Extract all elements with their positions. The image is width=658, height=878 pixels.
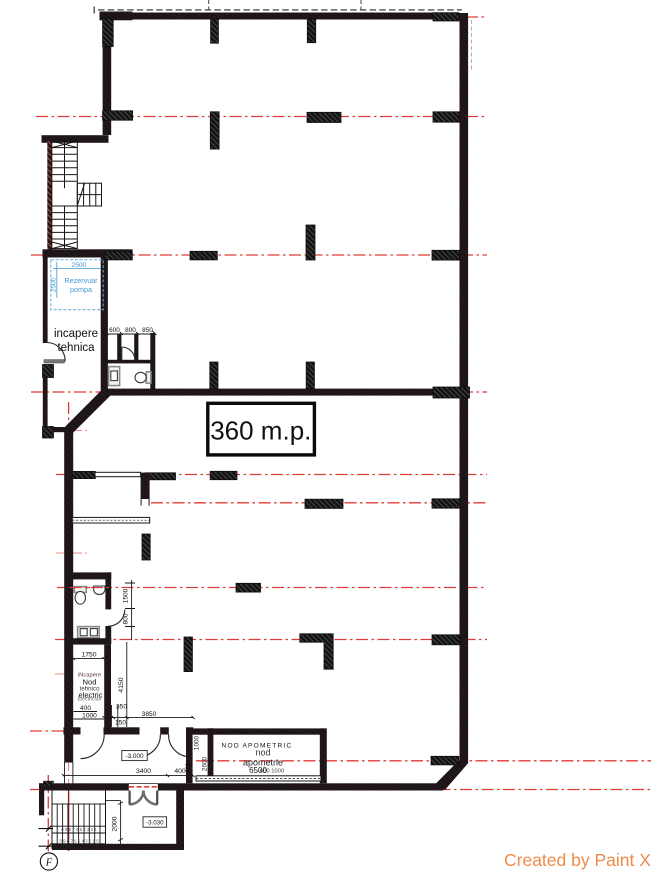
svg-text:360 m.p.: 360 m.p. — [210, 416, 311, 446]
svg-text:1000: 1000 — [193, 735, 200, 750]
svg-text:400: 400 — [80, 705, 91, 712]
svg-text:400: 400 — [186, 762, 192, 773]
svg-text:1500: 1500 — [123, 588, 130, 603]
svg-text:F: F — [45, 858, 53, 869]
svg-text:1750: 1750 — [81, 651, 96, 658]
svg-text:Created by Paint X: Created by Paint X — [504, 850, 651, 870]
svg-text:800: 800 — [125, 327, 136, 334]
svg-text:400: 400 — [174, 768, 186, 775]
svg-text:2500: 2500 — [72, 262, 87, 269]
svg-text:-3.000: -3.000 — [125, 753, 144, 760]
svg-text:pompa: pompa — [70, 285, 92, 294]
svg-text:-3.030: -3.030 — [146, 820, 164, 827]
svg-text:0 9 8 7 6 5 4 3 2 1: 0 9 8 7 6 5 4 3 2 1 — [61, 827, 97, 832]
svg-text:3850: 3850 — [142, 711, 157, 718]
svg-text:850: 850 — [142, 327, 153, 334]
svg-text:0 9 8 7 6 5 4 3 2 1 0: 0 9 8 7 6 5 4 3 2 1 0 — [59, 839, 99, 844]
svg-text:3400: 3400 — [136, 768, 151, 775]
svg-text:incapere: incapere — [54, 328, 98, 340]
svg-text:nod: nod — [255, 748, 270, 758]
svg-text:800: 800 — [123, 613, 130, 624]
svg-text:4150: 4150 — [118, 677, 125, 692]
svg-text:2500: 2500 — [51, 277, 58, 292]
svg-text:150: 150 — [115, 720, 126, 727]
svg-text:Rezervuar: Rezervuar — [64, 276, 98, 285]
svg-text:2600: 2600 — [202, 756, 209, 771]
svg-text:600 1000: 600 1000 — [260, 769, 284, 775]
svg-text:Electrician: Electrician — [78, 697, 102, 703]
svg-text:600: 600 — [109, 327, 120, 334]
svg-text:2000: 2000 — [111, 816, 118, 831]
